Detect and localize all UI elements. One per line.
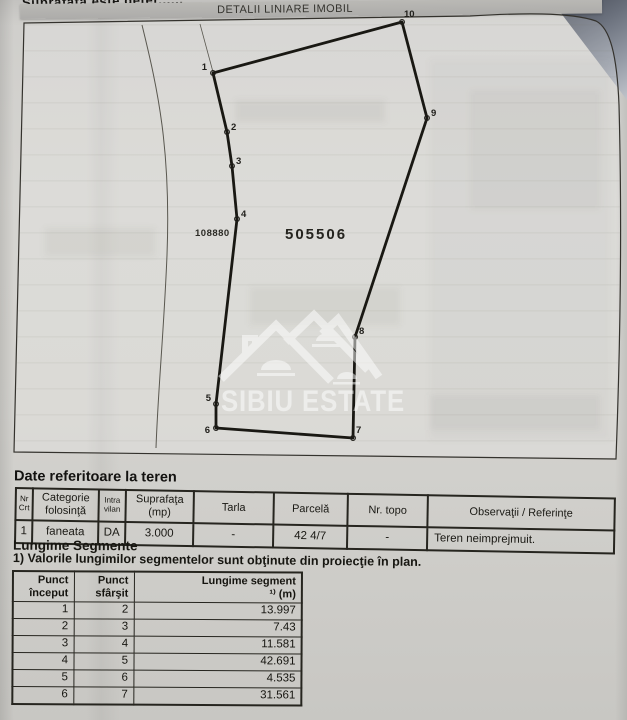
seg-length: 13.997 (134, 602, 302, 620)
seg-end: 2 (74, 602, 134, 619)
vertex-label-7: 7 (356, 425, 361, 436)
seg-end: 5 (73, 653, 133, 670)
watermark-text: SIBIU ESTATE (221, 385, 405, 418)
parcel-plan-drawing: 12345678910 108880 505506 SIBIU ESTATE (0, 0, 627, 465)
cell-parcela: 42 4/7 (273, 525, 347, 549)
seg-start: 5 (12, 670, 73, 687)
parcel-number-main: 505506 (285, 226, 347, 243)
vertex-label-3: 3 (236, 156, 241, 167)
land-table-title: Date referitoare la teren (14, 468, 177, 485)
vertex-label-6: 6 (205, 425, 210, 436)
segment-row: 2 3 7.43 (13, 619, 302, 638)
cell-observatii: Teren neimprejmuit. (427, 527, 614, 553)
seg-length: 42.691 (133, 653, 301, 671)
seg-start: 3 (13, 636, 74, 653)
segments-header-row: Punct început Punct sfârşit Lungime segm… (13, 571, 302, 603)
parcel-number-left: 108880 (195, 228, 230, 239)
segment-row: 3 4 11.581 (13, 636, 302, 655)
cell-tarla: - (193, 523, 273, 547)
seg-end: 6 (73, 670, 133, 687)
vertex-label-8: 8 (359, 326, 364, 337)
vertex-label-1: 1 (202, 62, 208, 73)
seg-end: 3 (74, 619, 134, 636)
seg-end: 4 (74, 636, 134, 653)
col-header-punct-sfarsit: Punct sfârşit (74, 571, 134, 602)
col-header-nr-crt: Nr Crt (15, 488, 33, 520)
col-header-observatii: Observaţii / Referinţe (427, 495, 615, 530)
vertex-label-10: 10 (404, 9, 415, 20)
col-header-nr-topo: Nr. topo (347, 494, 428, 527)
col-header-parcela: Parcelă (273, 493, 348, 526)
segment-row: 4 5 42.691 (12, 653, 301, 672)
col-header-lungime: Lungime segment ¹⁾ (m) (134, 572, 302, 603)
col-header-tarla: Tarla (193, 491, 274, 524)
cell-nr-topo: - (347, 526, 427, 550)
segment-row: 1 2 13.997 (13, 602, 302, 621)
vertex-label-5: 5 (206, 393, 212, 404)
col-header-intravilan: Intra vilan (98, 489, 126, 521)
seg-end: 7 (73, 687, 133, 705)
vertex-label-2: 2 (231, 122, 236, 133)
vertex-label-9: 9 (431, 108, 436, 119)
seg-length: 31.561 (133, 687, 301, 705)
seg-length: 4.535 (133, 670, 301, 688)
col-header-punct-inceput: Punct început (13, 571, 74, 602)
segments-note: 1) Valorile lungimilor segmentelor sunt … (13, 551, 422, 569)
segments-table: Punct început Punct sfârşit Lungime segm… (11, 570, 303, 707)
segment-row: 6 7 31.561 (12, 687, 301, 706)
seg-length: 7.43 (134, 619, 302, 637)
col-header-categorie: Categorie folosinţă (32, 488, 99, 521)
seg-start: 1 (13, 602, 74, 619)
col-header-suprafata: Suprafaţa (mp) (125, 490, 194, 523)
seg-start: 6 (12, 687, 73, 705)
seg-start: 2 (13, 619, 74, 636)
seg-length: 11.581 (134, 636, 302, 654)
segment-row: 5 6 4.535 (12, 670, 301, 689)
seg-start: 4 (12, 653, 73, 670)
vertex-label-4: 4 (241, 209, 247, 220)
